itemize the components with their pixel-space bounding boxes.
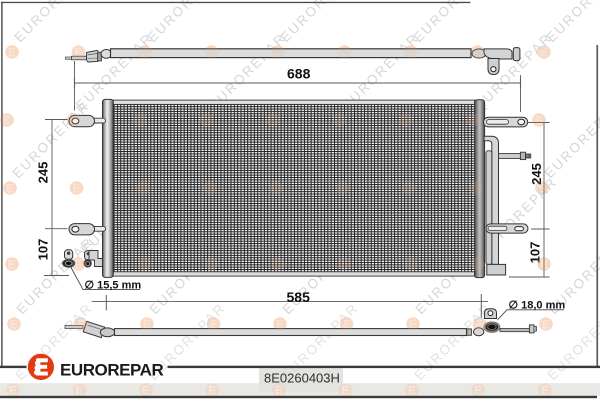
svg-text:E: E (9, 385, 17, 397)
svg-text:E: E (535, 115, 543, 127)
svg-text:688: 688 (287, 66, 311, 82)
svg-text:E: E (275, 385, 283, 397)
svg-text:E: E (76, 385, 84, 397)
svg-text:E: E (8, 47, 16, 59)
svg-text:E: E (73, 183, 81, 195)
svg-text:E: E (3, 115, 11, 127)
svg-text:E: E (10, 319, 18, 331)
svg-text:E: E (8, 259, 16, 271)
svg-text:E: E (209, 385, 217, 397)
svg-text:8E0260403H: 8E0260403H (264, 370, 340, 385)
svg-text:245: 245 (529, 163, 544, 185)
svg-text:E: E (142, 385, 150, 397)
svg-text:∅ 15,5 mm: ∅ 15,5 mm (85, 279, 142, 291)
svg-text:E: E (541, 385, 549, 397)
svg-text:E: E (542, 319, 550, 331)
svg-text:107: 107 (36, 239, 51, 261)
svg-text:245: 245 (36, 162, 51, 184)
svg-text:E: E (408, 385, 416, 397)
svg-text:E: E (475, 385, 483, 397)
svg-text:585: 585 (287, 289, 311, 305)
svg-text:EUROREPAR: EUROREPAR (60, 360, 163, 379)
svg-text:107: 107 (528, 242, 543, 264)
svg-text:∅ 18,0 mm: ∅ 18,0 mm (509, 300, 566, 312)
svg-text:E: E (342, 385, 350, 397)
svg-text:E: E (6, 183, 14, 195)
